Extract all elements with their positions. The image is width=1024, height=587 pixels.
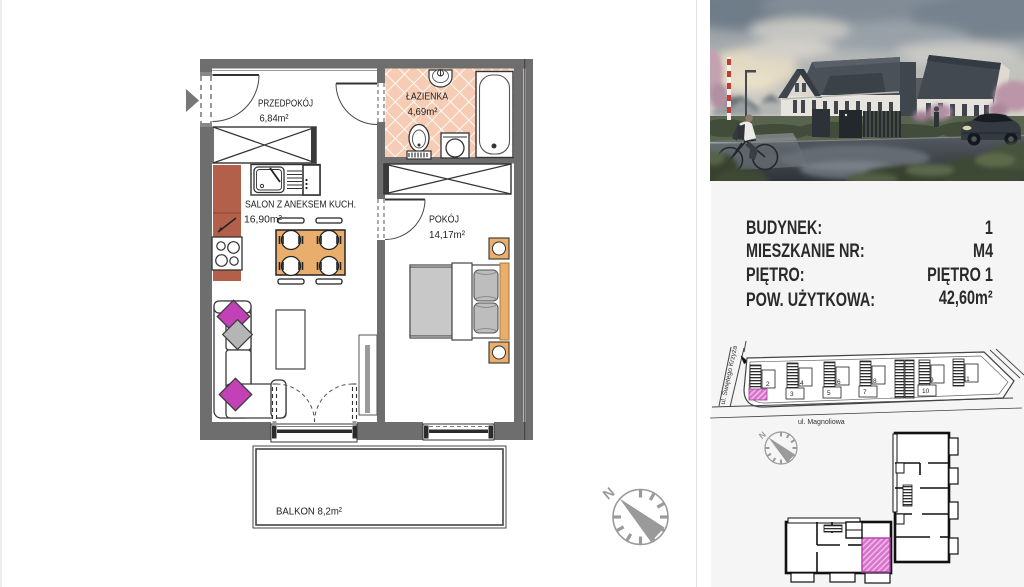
svg-text:2: 2	[766, 381, 770, 388]
svg-text:8: 8	[873, 378, 877, 385]
svg-text:ŁAZIENKA: ŁAZIENKA	[406, 92, 448, 103]
svg-text:10: 10	[922, 388, 930, 395]
svg-text:SALON Z ANEKSEM KUCH.: SALON Z ANEKSEM KUCH.	[245, 200, 356, 211]
svg-text:9: 9	[930, 377, 934, 384]
svg-text:POKÓJ: POKÓJ	[429, 213, 459, 226]
svg-text:PRZEDPOKÓJ: PRZEDPOKÓJ	[258, 97, 313, 110]
svg-text:4,69m²: 4,69m²	[408, 107, 439, 118]
svg-text:3: 3	[790, 391, 794, 398]
svg-text:ul. Świętego Krzyża: ul. Świętego Krzyża	[718, 345, 739, 405]
svg-text:7: 7	[863, 389, 867, 396]
svg-text:BALKON 8,2m²: BALKON 8,2m²	[276, 507, 343, 518]
svg-text:6: 6	[837, 379, 841, 386]
svg-text:11: 11	[963, 376, 970, 383]
svg-text:N: N	[600, 484, 618, 503]
svg-text:16,90m²: 16,90m²	[244, 215, 283, 226]
svg-text:5: 5	[827, 390, 831, 397]
svg-text:14,17m²: 14,17m²	[429, 230, 466, 241]
svg-text:N: N	[757, 429, 768, 441]
svg-text:ul. Magnoliowa: ul. Magnoliowa	[798, 419, 845, 426]
svg-text:4: 4	[800, 380, 804, 387]
svg-text:6,84m²: 6,84m²	[260, 114, 290, 125]
